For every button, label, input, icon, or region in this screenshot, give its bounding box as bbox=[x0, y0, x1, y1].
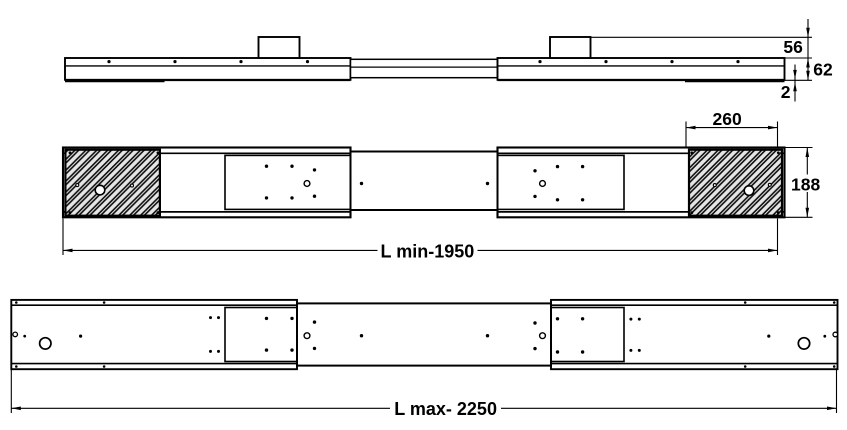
svg-text:62: 62 bbox=[813, 60, 833, 80]
svg-text:56: 56 bbox=[783, 37, 803, 57]
svg-text:188: 188 bbox=[791, 174, 820, 194]
svg-text:L max- 2250: L max- 2250 bbox=[394, 399, 497, 419]
svg-text:L min-1950: L min-1950 bbox=[381, 241, 475, 261]
svg-text:2: 2 bbox=[781, 82, 791, 102]
svg-text:260: 260 bbox=[712, 109, 741, 129]
